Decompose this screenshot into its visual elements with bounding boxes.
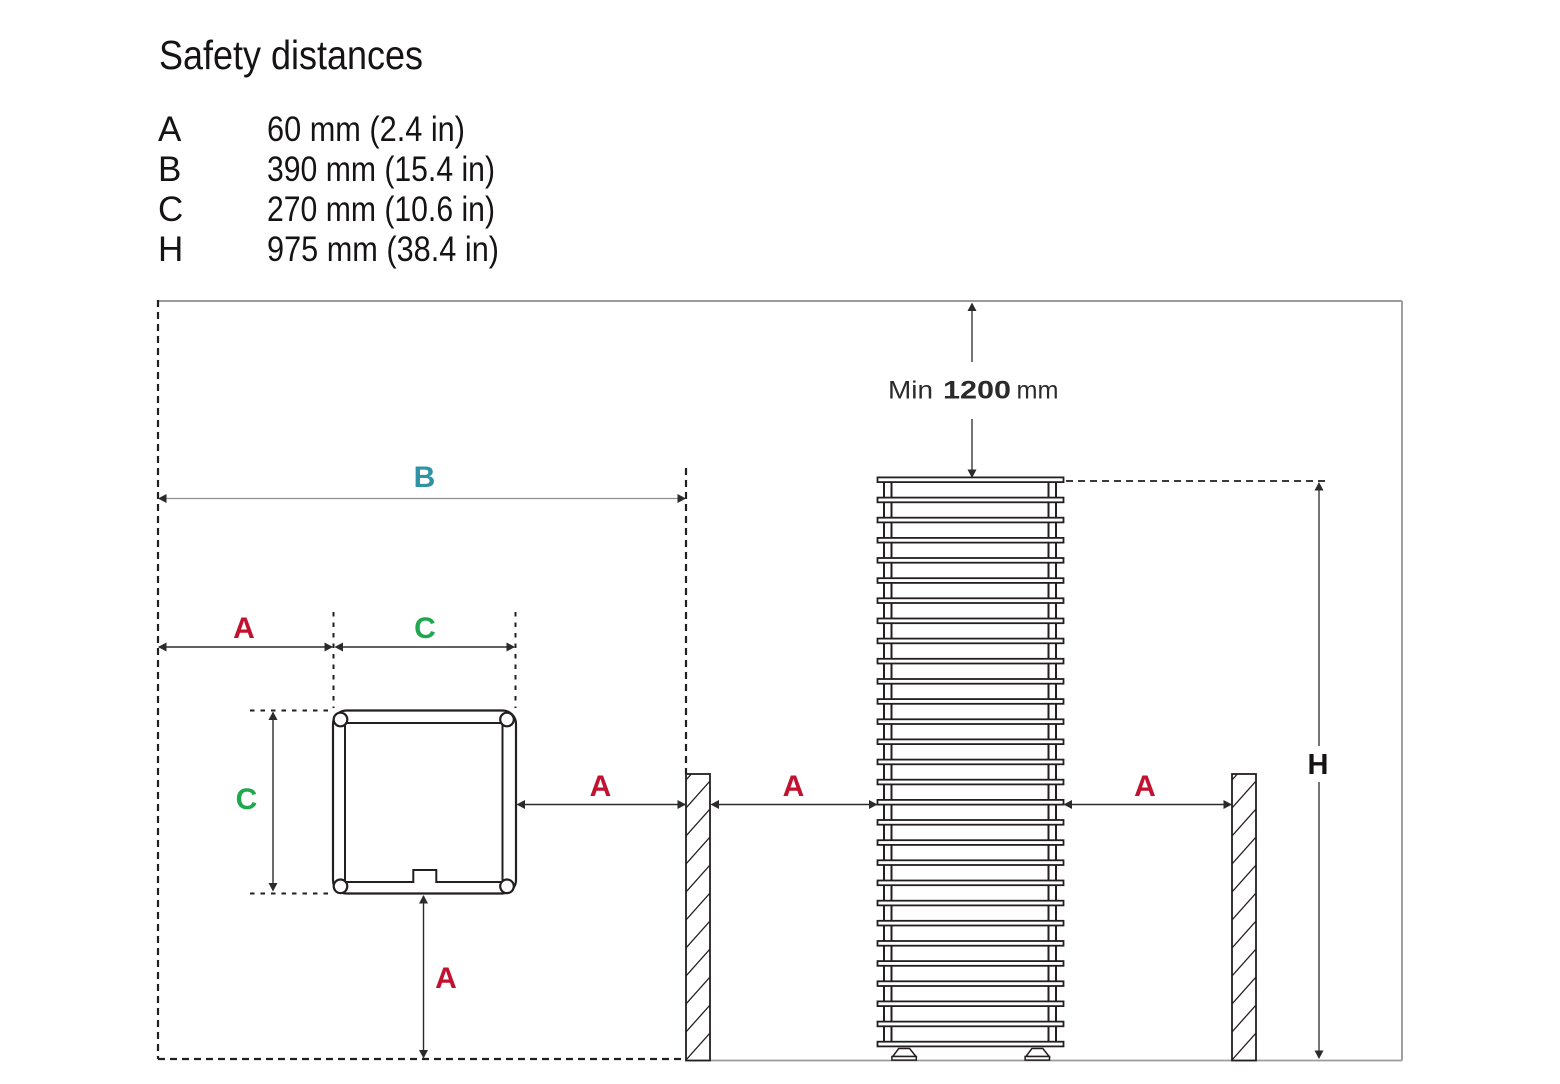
svg-text:60 mm (2.4 in): 60 mm (2.4 in) xyxy=(267,110,465,149)
svg-text:H: H xyxy=(1308,749,1329,781)
svg-text:1200: 1200 xyxy=(943,377,1011,405)
svg-text:390 mm (15.4 in): 390 mm (15.4 in) xyxy=(267,150,495,189)
svg-text:C: C xyxy=(236,783,258,816)
svg-text:A: A xyxy=(158,110,182,149)
svg-text:A: A xyxy=(233,612,255,645)
svg-text:Min: Min xyxy=(888,377,933,405)
svg-text:C: C xyxy=(158,190,183,229)
svg-text:B: B xyxy=(414,461,436,494)
svg-text:mm: mm xyxy=(1017,377,1059,405)
svg-text:A: A xyxy=(435,962,457,995)
svg-text:A: A xyxy=(783,770,805,803)
svg-text:Safety distances: Safety distances xyxy=(159,32,423,78)
svg-text:A: A xyxy=(1134,770,1156,803)
svg-text:975 mm (38.4 in): 975 mm (38.4 in) xyxy=(267,230,499,269)
svg-text:A: A xyxy=(590,770,612,803)
svg-text:C: C xyxy=(414,612,436,645)
svg-text:270 mm (10.6 in): 270 mm (10.6 in) xyxy=(267,190,495,229)
svg-text:H: H xyxy=(158,230,183,269)
svg-text:B: B xyxy=(158,150,181,189)
